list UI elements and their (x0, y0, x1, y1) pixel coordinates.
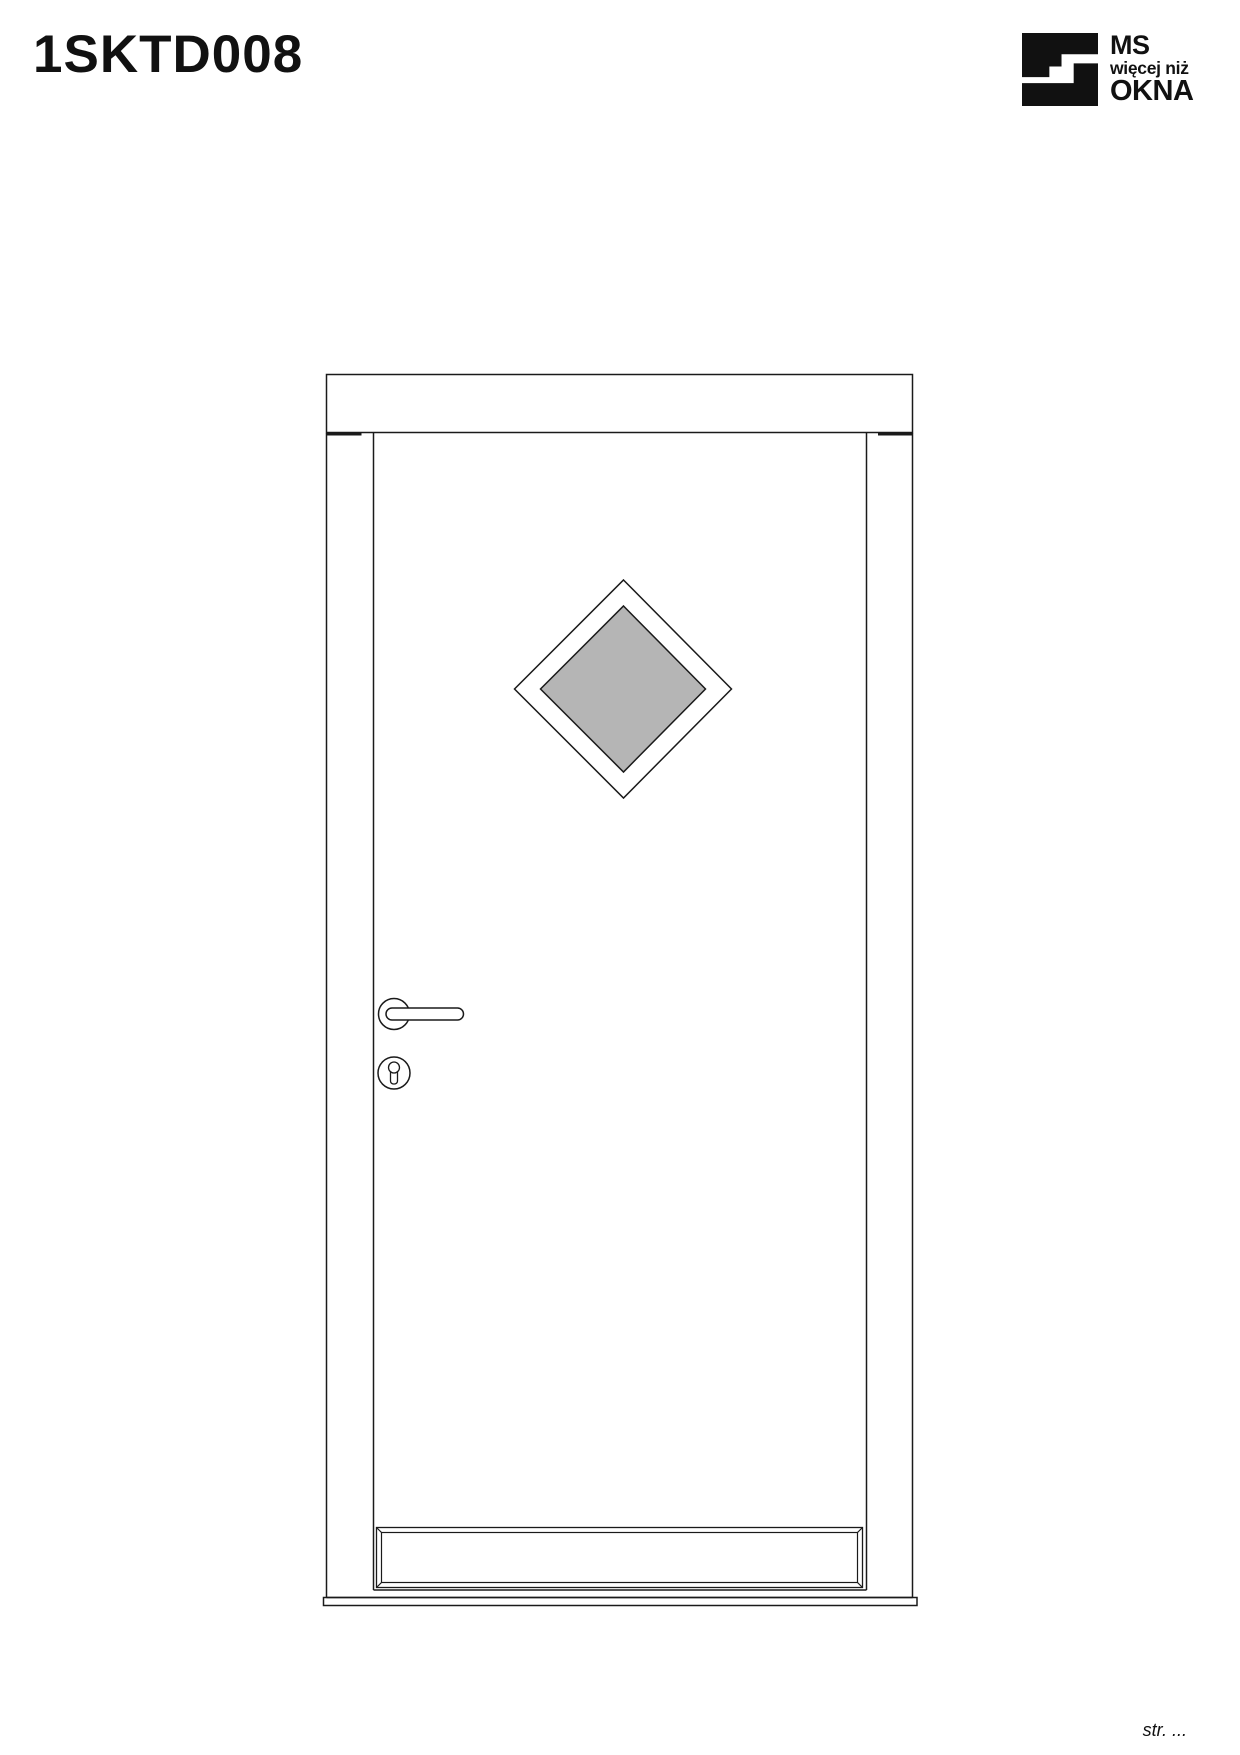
diamond-window-glass (541, 606, 706, 772)
threshold (324, 1598, 918, 1606)
page-number-label: str. ... (1143, 1720, 1187, 1741)
catalog-page: 1SKTD008 MS więcej niż OKNA (0, 0, 1240, 1755)
bottom-panel-outer (377, 1528, 863, 1588)
bottom-panel-inner (382, 1533, 858, 1583)
keyhole-cylinder-head (389, 1062, 400, 1073)
bottom-panel-bevel-top-left (377, 1528, 382, 1533)
door-technical-drawing (0, 0, 1240, 1755)
bottom-panel-bevel-top-right (858, 1528, 863, 1533)
bottom-panel-bevel-bottom-left (377, 1583, 382, 1588)
handle-lever (386, 1008, 464, 1020)
door-frame-transom (327, 375, 913, 433)
bottom-panel-bevel-bottom-right (858, 1583, 863, 1588)
